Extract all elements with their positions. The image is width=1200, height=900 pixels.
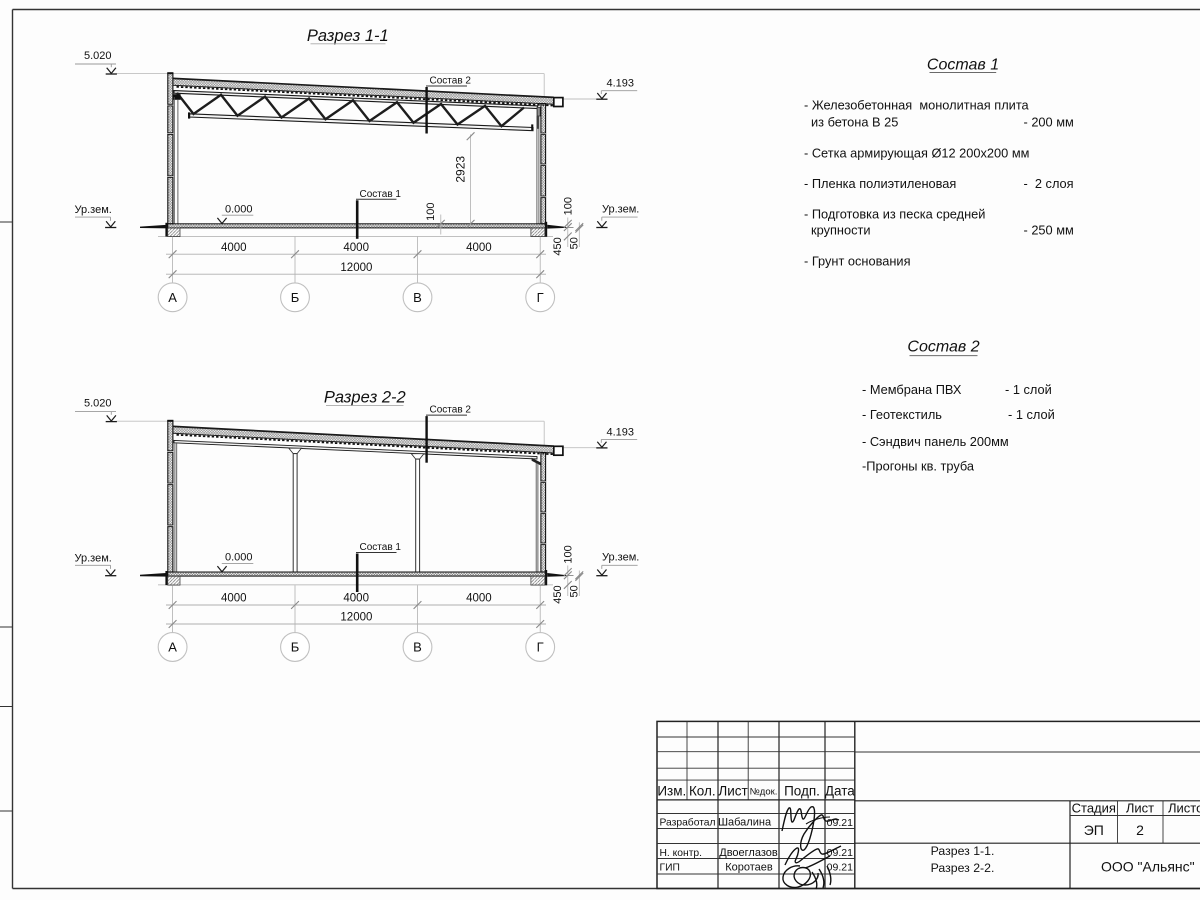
svg-text:5.020: 5.020 [84,50,112,62]
svg-text:- 200 мм: - 200 мм [1024,114,1074,129]
svg-text:Состав 2: Состав 2 [907,339,979,356]
svg-text:4.193: 4.193 [607,426,635,438]
svg-text:100: 100 [562,197,574,215]
svg-text:Разработал: Разработал [660,817,716,829]
svg-text:4000: 4000 [466,593,492,605]
svg-text:09.21: 09.21 [827,862,853,874]
svg-text:крупности: крупности [811,223,871,238]
svg-text:09.21: 09.21 [827,817,853,829]
svg-text:Дата: Дата [825,783,855,798]
svg-text:Разрез 2-2: Разрез 2-2 [324,389,406,407]
svg-text:4000: 4000 [221,242,247,254]
svg-text:№док.: №док. [750,787,778,798]
svg-text:Состав 2: Состав 2 [430,76,472,87]
svg-text:из бетона В 25: из бетона В 25 [811,114,898,129]
svg-text:В: В [413,290,422,305]
svg-text:4000: 4000 [343,593,369,605]
svg-text:Лист: Лист [1126,800,1154,815]
svg-text:100: 100 [425,203,437,221]
svg-text:4000: 4000 [466,242,492,254]
svg-text:2: 2 [1136,822,1144,838]
svg-text:0.000: 0.000 [225,552,253,564]
svg-text:0.000: 0.000 [225,204,253,216]
svg-text:450: 450 [552,237,564,255]
svg-text:100: 100 [562,545,574,563]
svg-text:Г: Г [537,290,544,305]
svg-text:Состав 1: Состав 1 [360,189,402,200]
svg-text:- Геотекстиль: - Геотекстиль [862,407,942,422]
svg-text:5.020: 5.020 [84,398,112,410]
svg-text:Состав 1: Состав 1 [927,57,999,74]
svg-text:- Грунт основания: - Грунт основания [804,253,911,268]
svg-text:В: В [413,640,422,655]
svg-text:12000: 12000 [340,262,372,274]
svg-text:- 250 мм: - 250 мм [1024,223,1074,238]
svg-text:ООО "Альянс": ООО "Альянс" [1101,858,1195,874]
svg-text:Листов: Листов [1168,800,1200,815]
svg-text:Б: Б [291,290,300,305]
svg-text:Ур.зем.: Ур.зем. [75,204,112,216]
svg-text:А: А [168,640,177,655]
svg-text:Разрез 2-2.: Разрез 2-2. [931,861,995,875]
svg-text:Стадия: Стадия [1072,800,1116,815]
svg-text:Коротаев: Коротаев [725,861,773,873]
svg-text:4000: 4000 [221,593,247,605]
svg-text:Состав 1: Состав 1 [360,542,402,553]
svg-text:Н. контр.: Н. контр. [660,848,703,859]
svg-text:- 2 слоя: - 2 слоя [1024,176,1074,191]
svg-text:- Пленка полиэтиленовая: - Пленка полиэтиленовая [804,176,956,191]
svg-text:09.21: 09.21 [827,847,853,859]
svg-text:Кол.: Кол. [689,783,716,798]
svg-text:12000: 12000 [340,612,372,624]
svg-text:4000: 4000 [343,242,369,254]
svg-text:Ур.зем.: Ур.зем. [75,552,112,564]
svg-text:А: А [168,290,177,305]
svg-text:2923: 2923 [453,156,467,183]
svg-text:50: 50 [569,237,581,249]
svg-text:4.193: 4.193 [607,78,635,90]
svg-text:50: 50 [569,585,581,597]
svg-text:-Прогоны кв. труба: -Прогоны кв. труба [862,459,975,474]
svg-text:- Подготовка из песка средней: - Подготовка из песка средней [804,206,985,221]
svg-text:ГИП: ГИП [660,862,680,873]
svg-text:- 1 слой: - 1 слой [1005,382,1052,397]
svg-text:Изм.: Изм. [657,783,686,798]
svg-text:450: 450 [552,585,564,603]
svg-text:Г: Г [537,640,544,655]
svg-text:Разрез 1-1: Разрез 1-1 [307,27,389,45]
svg-text:Разрез 1-1.: Разрез 1-1. [931,844,995,858]
svg-text:ЭП: ЭП [1084,822,1104,838]
svg-text:- Сетка армирующая Ø12 200х200: - Сетка армирующая Ø12 200х200 мм [804,146,1029,161]
svg-text:Шабалина: Шабалина [718,817,772,829]
svg-text:Лист: Лист [718,783,747,798]
svg-text:- 1 слой: - 1 слой [1008,407,1055,422]
svg-text:- Мембрана ПВХ: - Мембрана ПВХ [862,382,962,397]
svg-text:Б: Б [291,640,300,655]
svg-text:- Железобетонная монолитная п: - Железобетонная монолитная плита [804,98,1030,113]
svg-text:Ур.зем.: Ур.зем. [602,204,639,216]
svg-text:Состав 2: Состав 2 [430,405,472,416]
svg-text:Двоеглазов: Двоеглазов [719,847,778,859]
svg-text:Ур.зем.: Ур.зем. [602,552,639,564]
svg-text:Подп.: Подп. [784,783,820,798]
svg-text:- Сэндвич панель 200мм: - Сэндвич панель 200мм [862,434,1009,449]
